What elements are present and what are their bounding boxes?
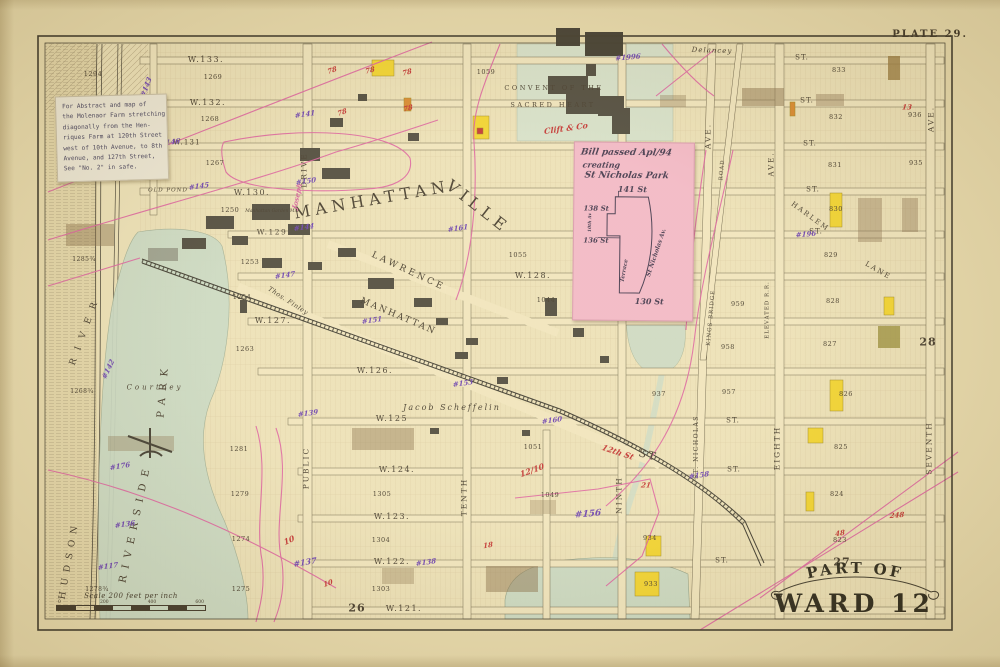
map-label: EIGHTH <box>773 426 781 471</box>
map-label: #136 <box>115 519 135 529</box>
map-label: 1253 <box>241 259 260 266</box>
sketch-label-terrace: Terrace <box>620 258 630 282</box>
map-label: PUBLIC <box>302 447 310 489</box>
map-label: 1303 <box>372 586 391 593</box>
map-label: TENTH <box>460 478 468 517</box>
map-label: #150 <box>296 176 316 186</box>
map-label: 933 <box>644 581 658 588</box>
map-label: Manhattan Garden Mill <box>245 210 299 215</box>
banner-ward-12: WARD 12 <box>773 589 934 618</box>
map-label: #160 <box>542 415 562 425</box>
map-label: 825 <box>834 444 848 451</box>
map-label: 957 <box>722 389 736 396</box>
sketch-label-st-nicholas-av: St Nicholas Av. <box>645 228 668 278</box>
map-label: 248 <box>890 511 905 519</box>
map-label: 936 <box>908 112 922 119</box>
map-label: Thos. Finley <box>267 286 309 317</box>
sketch-label-136st: 136 St <box>583 235 609 244</box>
map-label: 1304 <box>372 537 391 544</box>
map-label: 1044 <box>537 297 556 304</box>
map-label: 13 <box>902 104 913 111</box>
map-label: 937 <box>652 391 666 398</box>
map-label: 1294 <box>84 71 103 78</box>
map-label: Jacob Scheffelin <box>403 404 501 412</box>
map-label: SEVENTH <box>925 421 933 475</box>
map-label: 828 <box>826 298 840 305</box>
map-label: 1285¾ <box>72 257 96 263</box>
pink-note-line3: St Nicholas Park <box>584 170 670 181</box>
map-label: ST. <box>727 467 741 474</box>
map-label: 12/10 <box>519 462 544 479</box>
scale-bar: Scale 200 feet per inch 0200400600 <box>56 592 206 611</box>
scale-tick: 600 <box>195 600 204 605</box>
map-label: KINGS BRIDGE <box>707 290 717 346</box>
map-label: 1268¾ <box>70 389 94 395</box>
map-label: ST. <box>803 141 817 148</box>
map-label: #145 <box>189 181 209 191</box>
map-label: #158 <box>689 470 709 480</box>
map-label: 959 <box>731 301 745 308</box>
map-label: #138 <box>416 557 436 567</box>
sketch-label-130st: 130 St <box>635 296 664 306</box>
map-label: 831 <box>828 162 842 169</box>
map-label: W.123. <box>374 513 410 521</box>
map-label: 958 <box>721 344 735 351</box>
map-label: HUDSON <box>59 520 82 600</box>
map-label: MANHATTAN <box>293 178 451 221</box>
map-label: 829 <box>824 252 838 259</box>
map-label: #142 <box>101 358 116 380</box>
banner-part-of: PART OF <box>805 559 905 582</box>
scale-label: Scale 200 feet per inch <box>56 592 206 600</box>
map-label: W.125 <box>376 415 408 423</box>
map-label: W.133. <box>188 56 224 64</box>
map-label: 1279 <box>231 491 250 498</box>
map-label: 1269 <box>204 74 223 81</box>
map-label: #1996 <box>615 52 641 61</box>
map-label: AVE. <box>704 123 712 149</box>
sketch-label-141st: 141 St <box>618 184 647 194</box>
map-label: #196 <box>796 230 817 239</box>
map-label: ST. <box>806 187 820 194</box>
map-label: 28 <box>919 337 936 348</box>
map-label: 1305 <box>373 491 392 498</box>
map-label: #151 <box>362 315 382 325</box>
map-label: LAWRENCE <box>370 251 446 293</box>
map-label: W.126. <box>357 367 393 375</box>
map-label: OLD POND <box>148 188 188 194</box>
map-label: 78 <box>337 107 348 117</box>
map-label: #153 <box>453 378 473 388</box>
map-label: NINTH <box>615 476 623 514</box>
map-label: LANE <box>864 261 893 282</box>
scale-tick: 0 <box>58 600 61 605</box>
map-label: #141 <box>295 109 315 119</box>
archival-note-white: For Abstract and map ofthe Molenaor Farm… <box>55 93 169 182</box>
map-label: 26 <box>348 603 365 614</box>
map-label: W.122. <box>374 558 410 566</box>
map-label: CONVENT OF THE <box>504 85 603 92</box>
map-label: ST. <box>715 558 729 565</box>
map-label: 824 <box>830 491 844 498</box>
archival-note-pink: Bill passed Apl/94 creating St Nicholas … <box>572 141 695 321</box>
map-label: 833 <box>832 67 846 74</box>
map-label: 18 <box>483 541 493 550</box>
map-label: 78 <box>327 65 338 75</box>
sketch-label-10th-av: 10th Av <box>587 213 593 233</box>
map-label: W.130. <box>234 189 270 197</box>
map-label: W.129 <box>257 228 288 236</box>
map-label: #139 <box>298 408 318 418</box>
map-label: W.132. <box>190 99 226 107</box>
map-label: SACRED HEART <box>510 102 595 109</box>
pink-note-line1: Bill passed Apl/94 <box>580 147 672 158</box>
scale-rule <box>56 605 206 611</box>
map-label: 1254 <box>233 294 252 301</box>
map-label: W.121. <box>386 605 422 613</box>
pink-note-line2: creating <box>582 159 621 169</box>
map-label: ST <box>637 447 658 463</box>
map-label: #117 <box>98 561 118 571</box>
map-label: #137 <box>293 556 316 568</box>
map-label: 1051 <box>524 444 543 451</box>
map-label: 1250 <box>221 207 240 214</box>
map-label: 48 <box>835 529 845 538</box>
map-label: 832 <box>829 114 843 121</box>
map-label: AVE. <box>927 106 935 132</box>
plate-number: PLATE 29. <box>858 29 968 40</box>
map-label: #156 <box>575 509 602 520</box>
map-label: 10 <box>323 578 334 588</box>
map-label: 830 <box>829 206 843 213</box>
map-label: 935 <box>909 160 923 167</box>
map-label: AVE. <box>769 151 776 176</box>
scale-tick: 200 <box>100 600 109 605</box>
map-label: ROAD <box>719 159 726 180</box>
map-label: W.124. <box>379 466 415 474</box>
map-label: 934 <box>643 535 657 542</box>
map-label: 826 <box>839 391 853 398</box>
map-label: 1049 <box>541 492 560 499</box>
map-label: Courtney <box>127 385 184 392</box>
map-label: 78 <box>365 65 375 75</box>
map-label: W.128. <box>515 272 551 280</box>
map-label: ST. <box>795 55 809 62</box>
map-label: 21 <box>641 482 652 489</box>
map-label: 78 <box>402 67 412 77</box>
map-label: ST. <box>800 98 814 105</box>
map-label: 1059 <box>477 69 496 76</box>
map-label: 1275 <box>232 586 251 593</box>
map-label: 12th St <box>601 443 636 460</box>
map-label: 78 <box>403 103 413 113</box>
map-label: 1055 <box>509 252 528 259</box>
archival-note-white-text: For Abstract and map ofthe Molenaor Farm… <box>62 100 164 176</box>
map-label: 1274 <box>232 536 251 543</box>
map-label: RIVER <box>69 293 103 367</box>
ward-banner: PART OF WARD 12 <box>765 550 943 620</box>
map-label: #147 <box>275 270 295 280</box>
map-label: W.127. <box>255 317 291 325</box>
map-label: Clift & Co <box>544 121 588 135</box>
atlas-map-page: W.133.W.132.W.131W.130.W.129W.128.W.127.… <box>0 0 1000 667</box>
park-sketch: 141 St 138 St 136 St 130 St 10th Av Terr… <box>573 182 694 315</box>
scale-tick: 400 <box>148 600 157 605</box>
map-label: ST. <box>726 418 740 425</box>
map-label: #161 <box>448 223 468 233</box>
map-label: ELEVATED R.R. <box>765 281 771 339</box>
sketch-label-138st: 138 St <box>584 203 610 212</box>
map-label: 1267 <box>206 160 225 167</box>
map-label: 1263 <box>236 346 255 353</box>
white-note-line: See "No. 2" in safe. <box>64 162 164 175</box>
map-label: 827 <box>823 341 837 348</box>
map-label: Delancey <box>692 47 733 55</box>
map-label: 1281 <box>230 446 249 453</box>
map-label: #176 <box>110 461 130 472</box>
svg-text:PART OF: PART OF <box>805 559 905 582</box>
map-label: 10 <box>283 534 295 546</box>
map-label: 1268 <box>201 116 220 123</box>
map-label: #144 <box>294 222 314 232</box>
